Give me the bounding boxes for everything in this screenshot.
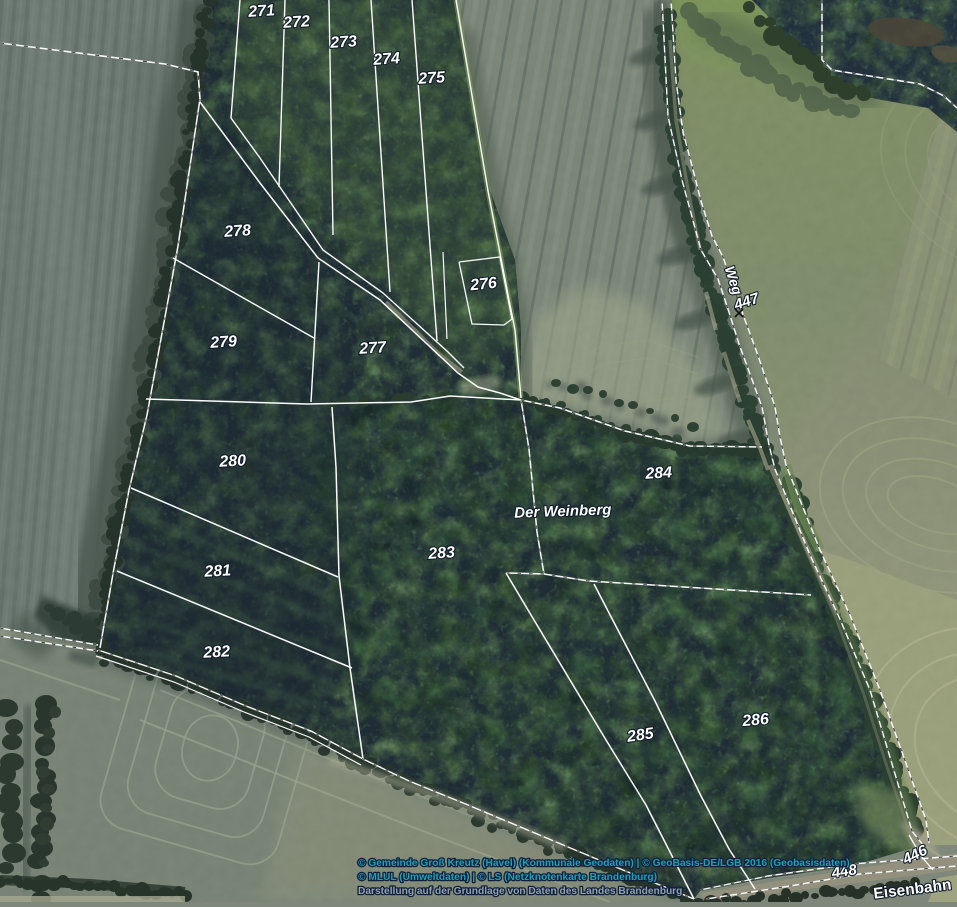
svg-text:276: 276: [468, 275, 497, 295]
svg-text:274: 274: [372, 50, 401, 69]
svg-text:279: 279: [209, 333, 238, 352]
svg-text:286: 286: [741, 711, 770, 730]
svg-text:281: 281: [203, 562, 232, 580]
svg-text:271: 271: [247, 2, 276, 21]
svg-text:275: 275: [417, 69, 447, 88]
svg-text:© MLUL (Umweltdaten) | © LS (N: © MLUL (Umweltdaten) | © LS (Netzknotenk…: [358, 872, 657, 883]
svg-text:282: 282: [202, 643, 231, 661]
svg-text:Darstellung auf der Grundlage: Darstellung auf der Grundlage von Daten …: [358, 886, 682, 897]
svg-text:273: 273: [329, 33, 358, 52]
svg-text:Der Weinberg: Der Weinberg: [514, 501, 612, 521]
svg-text:© Gemeinde Groß Kreutz (Havel): © Gemeinde Groß Kreutz (Havel) (Kommunal…: [358, 858, 850, 869]
svg-text:277: 277: [358, 339, 388, 358]
svg-text:272: 272: [282, 13, 311, 32]
svg-text:284: 284: [644, 464, 673, 482]
svg-text:280: 280: [218, 452, 247, 470]
svg-text:283: 283: [427, 544, 456, 563]
svg-text:278: 278: [223, 222, 252, 241]
